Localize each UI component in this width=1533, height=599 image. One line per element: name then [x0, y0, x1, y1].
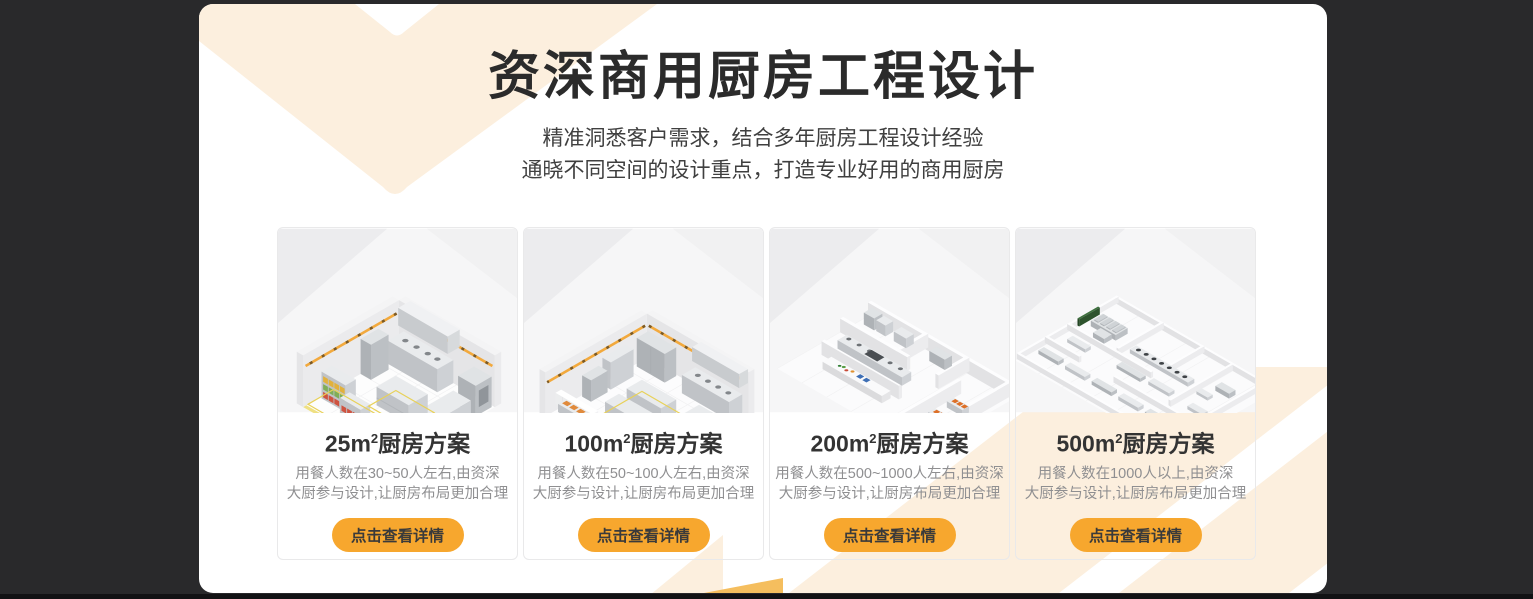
view-details-button[interactable]: 点击查看详情 — [824, 518, 956, 552]
page-subtitle: 精准洞悉客户需求，结合多年厨房工程设计经验 通晓不同空间的设计重点，打造专业好用… — [199, 123, 1327, 187]
kitchen-plan-image — [278, 228, 517, 413]
kitchen-plan-description: 用餐人数在1000人以上,由资深 大厨参与设计,让厨房布局更加合理 — [1025, 464, 1247, 504]
plan-area-label: 100m — [564, 431, 623, 457]
subtitle-line-2: 通晓不同空间的设计重点，打造专业好用的商用厨房 — [199, 155, 1327, 187]
page-background: { "theme": { "accent": "#F7A72E", "cream… — [0, 0, 1533, 599]
description-line-2: 大厨参与设计,让厨房布局更加合理 — [287, 484, 509, 504]
kitchen-plan-title: 500m2厨房方案 — [1056, 426, 1214, 457]
plan-title-suffix: 厨房方案 — [631, 431, 723, 457]
kitchen-plan-title: 25m2厨房方案 — [325, 426, 470, 457]
description-line-1: 用餐人数在500~1000人左右,由资深 — [775, 464, 1003, 484]
description-line-1: 用餐人数在30~50人左右,由资深 — [287, 464, 509, 484]
description-line-2: 大厨参与设计,让厨房布局更加合理 — [775, 484, 1003, 504]
description-line-1: 用餐人数在1000人以上,由资深 — [1025, 464, 1247, 484]
kitchen-plan-description: 用餐人数在50~100人左右,由资深 大厨参与设计,让厨房布局更加合理 — [533, 464, 755, 504]
kitchen-plan-title: 100m2厨房方案 — [564, 426, 722, 457]
content-panel: 资深商用厨房工程设计 精准洞悉客户需求，结合多年厨房工程设计经验 通晓不同空间的… — [199, 4, 1327, 593]
description-line-2: 大厨参与设计,让厨房布局更加合理 — [533, 484, 755, 504]
plan-area-label: 25m — [325, 431, 371, 457]
description-line-1: 用餐人数在50~100人左右,由资深 — [533, 464, 755, 484]
kitchen-plan-image — [1016, 228, 1255, 413]
kitchen-plan-card[interactable]: 100m2厨房方案 用餐人数在50~100人左右,由资深 大厨参与设计,让厨房布… — [523, 227, 764, 560]
kitchen-plan-card-row: 25m2厨房方案 用餐人数在30~50人左右,由资深 大厨参与设计,让厨房布局更… — [277, 227, 1256, 560]
plan-area-label: 500m — [1056, 431, 1115, 457]
subtitle-line-1: 精准洞悉客户需求，结合多年厨房工程设计经验 — [199, 123, 1327, 155]
plan-area-superscript: 2 — [1115, 431, 1122, 446]
section-header: 资深商用厨房工程设计 精准洞悉客户需求，结合多年厨房工程设计经验 通晓不同空间的… — [199, 4, 1327, 187]
plan-area-superscript: 2 — [869, 431, 876, 446]
kitchen-plan-image — [524, 228, 763, 413]
plan-title-suffix: 厨房方案 — [378, 431, 470, 457]
kitchen-plan-title: 200m2厨房方案 — [810, 426, 968, 457]
kitchen-plan-card[interactable]: 500m2厨房方案 用餐人数在1000人以上,由资深 大厨参与设计,让厨房布局更… — [1015, 227, 1256, 560]
plan-title-suffix: 厨房方案 — [877, 431, 969, 457]
plan-area-label: 200m — [810, 431, 869, 457]
description-line-2: 大厨参与设计,让厨房布局更加合理 — [1025, 484, 1247, 504]
view-details-button[interactable]: 点击查看详情 — [578, 518, 710, 552]
kitchen-plan-description: 用餐人数在30~50人左右,由资深 大厨参与设计,让厨房布局更加合理 — [287, 464, 509, 504]
plan-title-suffix: 厨房方案 — [1123, 431, 1215, 457]
plan-area-superscript: 2 — [623, 431, 630, 446]
page-title: 资深商用厨房工程设计 — [199, 48, 1327, 108]
view-details-button[interactable]: 点击查看详情 — [1070, 518, 1202, 552]
view-details-button[interactable]: 点击查看详情 — [332, 518, 464, 552]
kitchen-plan-image — [770, 228, 1009, 413]
bottom-divider — [0, 594, 1533, 599]
kitchen-plan-description: 用餐人数在500~1000人左右,由资深 大厨参与设计,让厨房布局更加合理 — [775, 464, 1003, 504]
kitchen-plan-card[interactable]: 25m2厨房方案 用餐人数在30~50人左右,由资深 大厨参与设计,让厨房布局更… — [277, 227, 518, 560]
deco-gold-wedge — [704, 578, 783, 593]
kitchen-plan-card[interactable]: 200m2厨房方案 用餐人数在500~1000人左右,由资深 大厨参与设计,让厨… — [769, 227, 1010, 560]
